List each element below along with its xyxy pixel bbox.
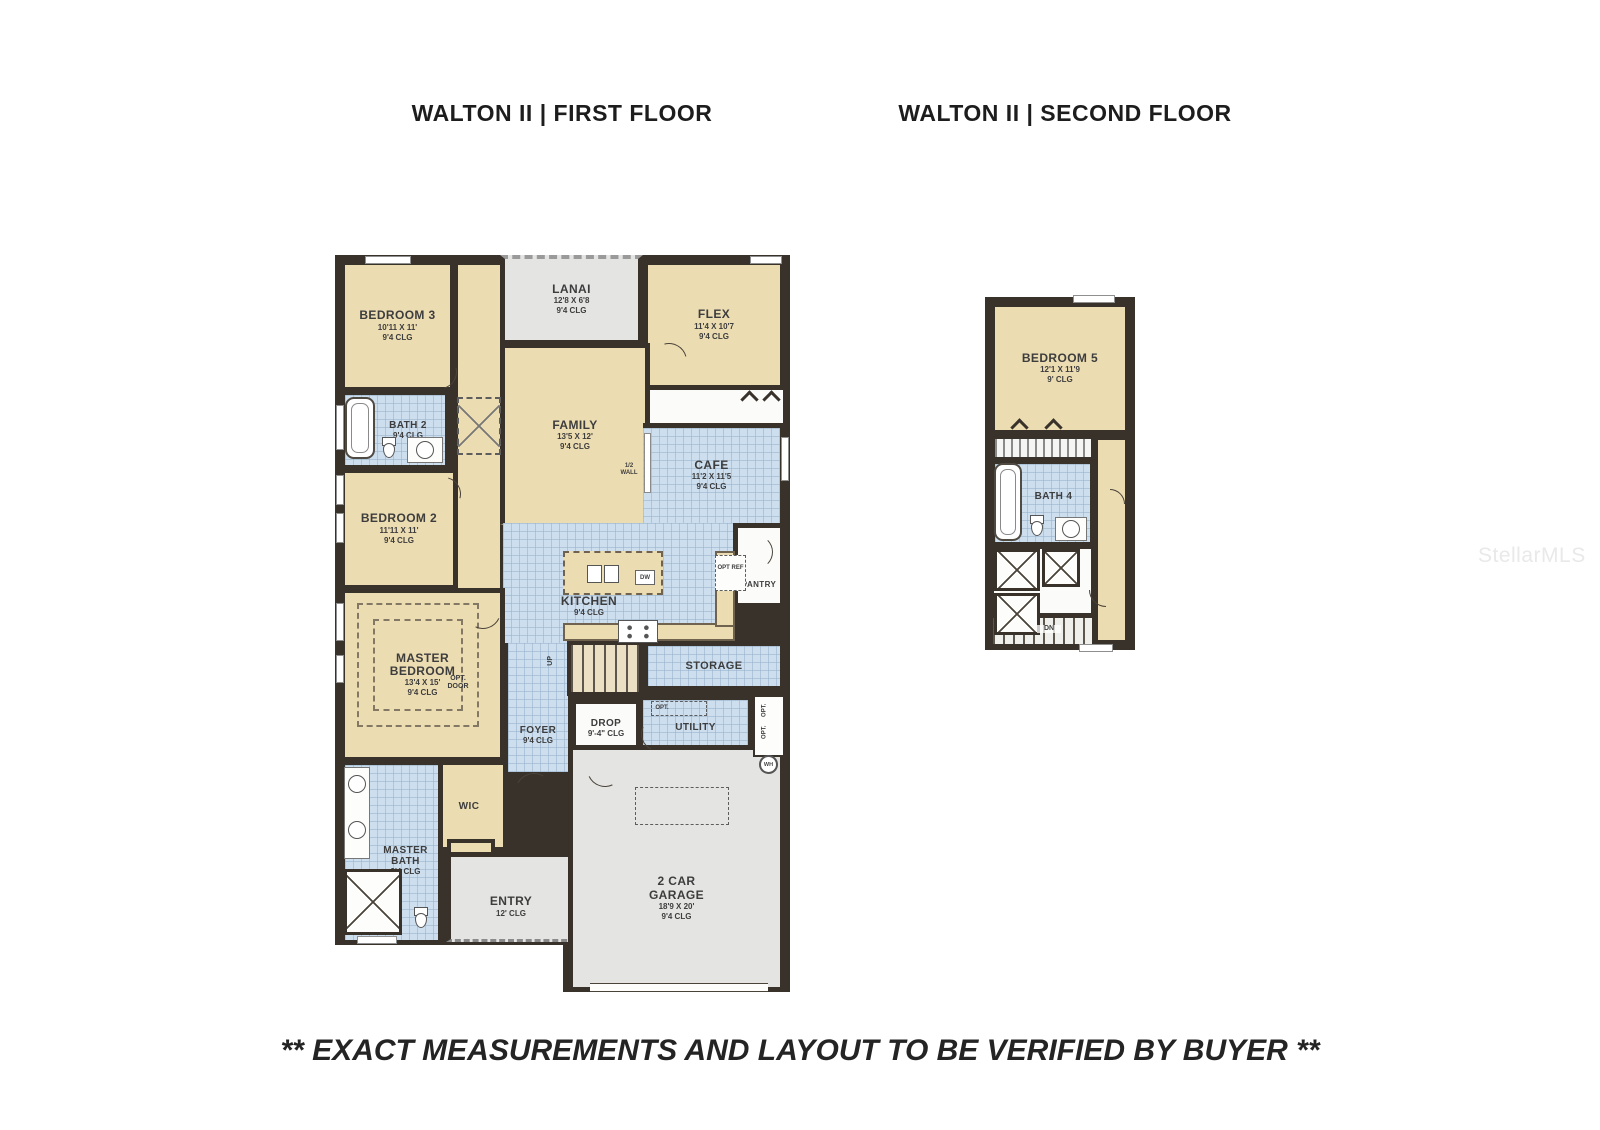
room-ceiling: 9'4 CLG <box>560 442 590 452</box>
stairs-up-label: UP <box>547 651 555 671</box>
room-dimension: 11'11 X 11' <box>380 526 419 536</box>
shower-icon <box>344 869 402 935</box>
sink-icon <box>1062 520 1080 538</box>
room-ceiling: 9'4 CLG <box>384 536 414 546</box>
closet-shelf <box>993 437 1093 459</box>
room-ceiling: 9'4 CLG <box>383 333 413 343</box>
toilet-icon <box>413 907 429 928</box>
room-ceiling: 9'4 CLG <box>557 306 587 316</box>
room-label: WIC <box>459 801 480 812</box>
room-foyer: FOYER 9'4 CLG <box>503 643 573 777</box>
island-sink-basin <box>587 565 602 583</box>
window <box>336 655 344 683</box>
linen-closet-icon <box>1042 549 1080 587</box>
window <box>1073 295 1115 303</box>
room-label: KITCHEN <box>503 595 675 608</box>
window <box>336 603 344 641</box>
room-ceiling: 9'4 CLG <box>503 608 675 618</box>
room-ceiling: 9'4 CLG <box>523 736 553 746</box>
watermark: StellarMLS <box>1478 544 1586 568</box>
opt-ref-label: OPT REF <box>716 565 745 572</box>
opt-label: OPT. <box>762 700 769 720</box>
toilet-icon <box>1029 515 1045 536</box>
room-label: BATH 2 <box>389 420 427 431</box>
room-dimension: 13'5 X 12' <box>557 432 593 442</box>
room-label: PANTRY <box>742 581 776 590</box>
room-label: LANAI <box>552 283 591 296</box>
room-bedroom5: BEDROOM 5 12'1 X 11'9 9' CLG <box>990 302 1130 435</box>
door-swing-pantry <box>739 535 773 569</box>
room-dimension: 18'9 X 20' <box>659 902 695 912</box>
room-label: BEDROOM 2 <box>361 512 437 525</box>
stairs-up <box>567 641 643 696</box>
first-floor-plan: BEDROOM 3 10'11 X 11' 9'4 CLG LANAI 12'8… <box>335 255 790 995</box>
window <box>365 256 411 264</box>
room-label: BATH 4 <box>1035 491 1073 502</box>
second-floor-plan: BEDROOM 5 12'1 X 11'9 9' CLG BATH 4 DN <box>985 297 1135 650</box>
room-dimension: 10'11 X 11' <box>378 323 417 333</box>
opt-label: OPT. <box>762 722 769 742</box>
room-cafe: CAFE 11'2 X 11'5 9'4 CLG <box>643 423 785 523</box>
room-entry: ENTRY 12' CLG <box>446 852 576 942</box>
room-label: BEDROOM 3 <box>359 309 435 322</box>
room-label: STORAGE <box>686 660 743 672</box>
attic-access-outline <box>635 787 729 825</box>
sink-icon <box>348 775 366 793</box>
room-storage: STORAGE <box>643 641 785 691</box>
window <box>357 936 397 944</box>
sink-icon <box>348 821 366 839</box>
hallway-second-floor <box>1093 435 1130 645</box>
room-label: FOYER <box>520 725 556 736</box>
half-wall-label: 1/2 WALL <box>617 463 641 476</box>
window <box>781 437 789 481</box>
room-family: FAMILY 13'5 X 12' 9'4 CLG <box>500 343 650 525</box>
toilet-icon <box>381 437 397 458</box>
disclaimer-text: ** EXACT MEASUREMENTS AND LAYOUT TO BE V… <box>0 1034 1600 1068</box>
first-floor-title: WALTON II | FIRST FLOOR <box>312 100 812 127</box>
room-label: MASTER BATH <box>373 845 438 867</box>
sink-icon <box>416 441 434 459</box>
room-ceiling: 9'4 CLG <box>662 912 692 922</box>
room-ceiling: 9' CLG <box>1047 375 1072 385</box>
room-ceiling: 9'4 CLG <box>408 688 438 698</box>
room-label: 2 CAR GARAGE <box>637 875 717 901</box>
half-wall <box>644 433 651 493</box>
bathtub-icon <box>345 397 375 459</box>
room-ceiling: 9'4 CLG <box>697 482 727 492</box>
room-label: ENTRY <box>490 895 532 908</box>
floor-plan-page: WALTON II | FIRST FLOOR WALTON II | SECO… <box>0 0 1600 1130</box>
room-ceiling: 9'-4" CLG <box>588 729 624 739</box>
room-lanai: LANAI 12'8 X 6'8 9'4 CLG <box>500 255 643 345</box>
linen-closet-icon <box>994 593 1040 635</box>
window <box>336 475 344 505</box>
island-sink-basin <box>604 565 619 583</box>
stove-icon <box>618 620 658 643</box>
second-floor-title: WALTON II | SECOND FLOOR <box>815 100 1315 127</box>
room-label: BEDROOM 5 <box>1022 352 1098 365</box>
room-label: FLEX <box>698 308 730 321</box>
garage-door <box>590 983 768 992</box>
window <box>1079 644 1113 652</box>
optional-closet-outline <box>457 397 501 455</box>
room-ceiling: 12' CLG <box>496 909 526 919</box>
room-label: DROP <box>591 718 622 729</box>
window <box>750 256 782 264</box>
bathtub-icon <box>994 463 1022 541</box>
room-ceiling: 9'4 CLG <box>699 332 729 342</box>
window <box>336 513 344 543</box>
window <box>336 405 344 450</box>
stairs-down-label: DN <box>1037 625 1061 633</box>
room-label: CAFE <box>694 459 728 472</box>
linen-closet-icon <box>994 549 1040 591</box>
room-dimension: 12'1 X 11'9 <box>1040 365 1080 375</box>
opt-label: OPT. <box>653 705 671 712</box>
utility-closet <box>753 695 785 757</box>
room-label: UTILITY <box>675 722 716 733</box>
kitchen-label-block: KITCHEN 9'4 CLG <box>503 595 675 618</box>
dishwasher-label: DW <box>635 570 655 585</box>
room-dimension: 12'8 X 6'8 <box>554 296 590 306</box>
room-dimension: 11'2 X 11'5 <box>692 472 731 482</box>
room-label: FAMILY <box>552 419 597 432</box>
room-dimension: 13'4 X 15' <box>405 678 441 688</box>
opt-door-label: OPT. DOOR <box>441 675 475 690</box>
water-heater-icon: WH <box>759 755 778 774</box>
room-dimension: 11'4 X 10'7 <box>694 322 734 332</box>
